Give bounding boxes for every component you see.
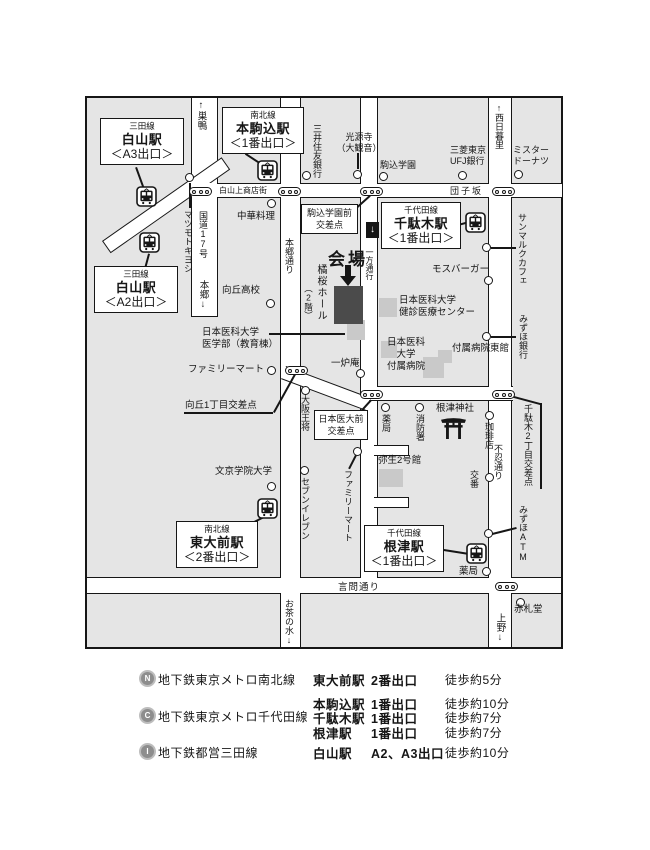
poi-matsukiyo: マツモトキヨシ	[183, 210, 192, 273]
poi-dot-mizuho-atm	[484, 529, 493, 538]
poi-dot-ichiroan	[356, 369, 365, 378]
line-saintmarc	[491, 247, 516, 249]
torii-icon	[440, 415, 467, 439]
mita-line-icon: I	[139, 743, 156, 760]
road-label-shinobazu: 不忍通り	[493, 444, 502, 480]
poi-med-school: 日本医科大学 医学部（教育棟）	[202, 327, 278, 351]
poi-dot-bunkyo	[267, 482, 276, 491]
poi-koban: 交番	[469, 470, 478, 488]
intersection-sendagi-2chome: 千駄木2丁目交差点	[523, 404, 532, 486]
traffic-light-icon	[360, 187, 383, 196]
road-label-hongodori: 本郷通り	[284, 238, 293, 274]
legend-walk: 徒歩約7分	[445, 724, 502, 741]
train-icon-hakusan-a3	[136, 186, 157, 207]
road-label-ueno: 上野↓	[495, 613, 505, 643]
legend-line-chiyoda: 地下鉄東京メトロ千代田線	[158, 708, 308, 725]
poi-seven-eleven: セブンイレブン	[300, 477, 309, 540]
road-label-hongo-dir: 本郷↓	[198, 280, 208, 310]
poi-kogenji: 光源寺 （大観音）	[336, 132, 382, 155]
poi-mufg-bank: 三菱東京 UFJ銀行	[450, 145, 486, 168]
poi-komagome-gakuen: 駒込学園	[380, 160, 416, 171]
poi-dot-yakkyoku1	[381, 403, 390, 412]
poi-shobosho: 消防署	[415, 414, 424, 441]
legend-station: 東大前駅	[313, 670, 365, 689]
poi-bunkyo-univ: 文京学院大学	[215, 466, 272, 478]
poi-dot-mitsui	[302, 171, 311, 180]
poi-dot-osho	[301, 386, 310, 395]
traffic-light-icon	[189, 187, 212, 196]
legend-line-namboku: 地下鉄東京メトロ南北線	[158, 671, 296, 688]
venue-hall-name: 橘桜ホール	[315, 264, 325, 322]
poi-coffee: 珈琲店	[484, 422, 493, 449]
station-box-honkomagome: 南北線 本駒込駅 ＜1番出口＞	[222, 107, 304, 154]
poi-mitsui-sumitomo: 三井住友銀行	[312, 124, 321, 178]
train-icon-honkomagome	[257, 160, 278, 181]
poi-ichiroan: 一炉庵	[331, 358, 360, 370]
road-label-ochanomizu: お茶の水↓	[284, 599, 293, 645]
legend-exit: A2、A3出口	[371, 743, 444, 762]
poi-dot-mukogaoka-hs	[266, 299, 275, 308]
road-label-nishinippori: ↑西日暮里	[494, 103, 503, 149]
station-box-hakusan-a2: 三田線 白山駅 ＜A2出口＞	[94, 266, 178, 313]
traffic-light-icon	[285, 366, 308, 375]
poi-dot-komagome-gakuen	[379, 172, 388, 181]
road-label-dangozaka: 団子坂	[450, 186, 483, 197]
intersection-mukogaoka: 向丘1丁目交差点	[185, 400, 257, 412]
legend-station: 白山駅	[313, 743, 352, 762]
intersection-komagome-gakuen-mae: 駒込学園前 交差点	[301, 204, 358, 234]
one-way-arrow-sign: ↓	[366, 222, 379, 238]
legend-walk: 徒歩約5分	[445, 671, 502, 688]
train-icon-nezu	[466, 543, 487, 564]
legend-line-mita: 地下鉄都営三田線	[158, 744, 258, 761]
road-label-shotengai: 白山上商店街	[219, 186, 267, 196]
poi-chuka: 中華料理	[237, 211, 275, 223]
poi-family-mart-2: ファミリーマート	[343, 470, 352, 542]
traffic-light-icon	[492, 390, 515, 399]
line-sendagi2	[540, 403, 542, 489]
building-hospital-c	[438, 350, 452, 363]
poi-dot-yakkyoku2	[482, 567, 491, 576]
poi-dot-kogenji	[353, 170, 362, 179]
chiyoda-line-icon: C	[139, 707, 156, 724]
road-label-sugamo: ↑巣鴨	[196, 100, 206, 130]
poi-dot-saintmarc	[482, 243, 491, 252]
access-map-page: { "colors": {"block_gray": "#e5e5e5", "b…	[0, 0, 650, 850]
poi-dot-mos	[484, 276, 493, 285]
legend-exit: 1番出口	[371, 723, 417, 742]
poi-yayoi-bldg: 弥生2号館	[378, 455, 421, 467]
road-shinobazu-dori	[488, 98, 512, 647]
poi-mukogaoka-hs: 向丘高校	[222, 285, 260, 297]
station-box-sendagi: 千代田線 千駄木駅 ＜1番出口＞	[381, 202, 461, 249]
poi-dot-chuka	[267, 199, 276, 208]
poi-dot-matsukiyo	[185, 173, 194, 182]
namboku-line-icon: N	[139, 670, 156, 687]
poi-nezu-jinja: 根津神社	[436, 403, 474, 415]
poi-yakkyoku-1: 薬局	[381, 414, 390, 432]
poi-dot-coffee	[485, 411, 494, 420]
poi-family-mart-1: ファミリーマート	[188, 364, 264, 376]
poi-fuzoku-hospital: 日本医科 大学 付属病院	[378, 337, 434, 373]
traffic-light-icon	[278, 187, 301, 196]
poi-dot-mufg	[458, 171, 467, 180]
venue-hall-floor: （2階）	[304, 284, 313, 320]
line-mukogaoka-underline	[184, 412, 273, 414]
poi-dot-donut	[514, 170, 523, 179]
train-icon-todaimae	[257, 498, 278, 519]
poi-mister-donut: ミスター ドーナツ	[513, 145, 549, 168]
line-mizuho-bank	[491, 336, 516, 338]
station-box-hakusan-a3: 三田線 白山駅 ＜A3出口＞	[100, 118, 184, 165]
road-label-kototoi: 言問通り	[338, 582, 380, 594]
poi-dot-shobo	[415, 403, 424, 412]
road-yayoi-stub-2	[374, 497, 409, 508]
legend-walk: 徒歩約10分	[445, 744, 509, 761]
road-label-route17: 国道17号	[198, 211, 207, 258]
poi-dot-seven	[300, 466, 309, 475]
legend-station: 根津駅	[313, 723, 352, 742]
poi-fuzoku-tokan: 付属病院東館	[452, 343, 509, 355]
building-venue-hall	[334, 286, 363, 324]
poi-dot-famima2	[353, 447, 362, 456]
station-box-todaimae: 南北線 東大前駅 ＜2番出口＞	[176, 521, 258, 568]
poi-mizuho-atm: みずほATM	[518, 505, 527, 562]
building-kenshin-center	[379, 298, 397, 317]
train-icon-sendagi	[465, 212, 486, 233]
train-icon-hakusan-a2	[139, 232, 160, 253]
station-box-nezu: 千代田線 根津駅 ＜1番出口＞	[364, 525, 444, 572]
poi-mizuho-bank: みずほ銀行	[518, 314, 527, 359]
poi-dot-mizuho-bank	[482, 332, 491, 341]
traffic-light-icon	[495, 582, 518, 591]
poi-akafudado: 赤札堂	[514, 604, 543, 616]
poi-saint-marc: サンマルクカフェ	[517, 213, 526, 285]
poi-dot-famima1	[267, 366, 276, 375]
poi-yakkyoku-2: 薬局	[459, 566, 478, 578]
legend-exit: 2番出口	[371, 670, 417, 689]
poi-mos-burger: モスバーガー	[432, 264, 489, 276]
line-medschool-pointer	[269, 333, 345, 335]
intersection-nihon-idai-mae: 日本医大前 交差点	[314, 410, 368, 440]
traffic-light-icon	[360, 390, 383, 399]
poi-osaka-osho: 大阪王将	[300, 395, 309, 431]
traffic-light-icon	[492, 187, 515, 196]
line-kogenji	[357, 153, 359, 169]
building-yayoi	[379, 469, 403, 487]
poi-kenshin-center: 日本医科大学 健診医療センター	[399, 295, 475, 319]
